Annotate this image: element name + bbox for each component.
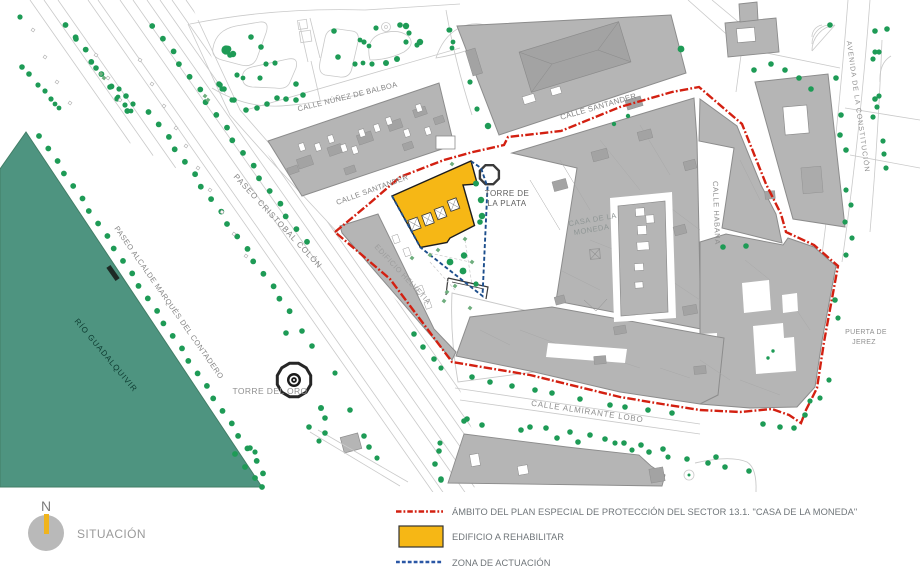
svg-text:LA PLATA: LA PLATA [488,199,527,208]
svg-text:TORRE DE: TORRE DE [485,189,529,198]
svg-text:PUERTA DE: PUERTA DE [845,329,887,336]
svg-text:ZONA DE ACTUACIÓN: ZONA DE ACTUACIÓN [452,558,550,568]
svg-text:EDIFICIO A REHABILITAR: EDIFICIO A REHABILITAR [452,532,564,542]
svg-text:SITUACIÓN: SITUACIÓN [77,526,146,541]
svg-text:TORRE DEL ORO: TORRE DEL ORO [232,386,307,396]
svg-text:N: N [41,498,51,514]
svg-text:JEREZ: JEREZ [852,339,876,346]
svg-text:ÁMBITO DEL PLAN ESPECIAL DE PR: ÁMBITO DEL PLAN ESPECIAL DE PROTECCIÓN D… [452,507,857,517]
